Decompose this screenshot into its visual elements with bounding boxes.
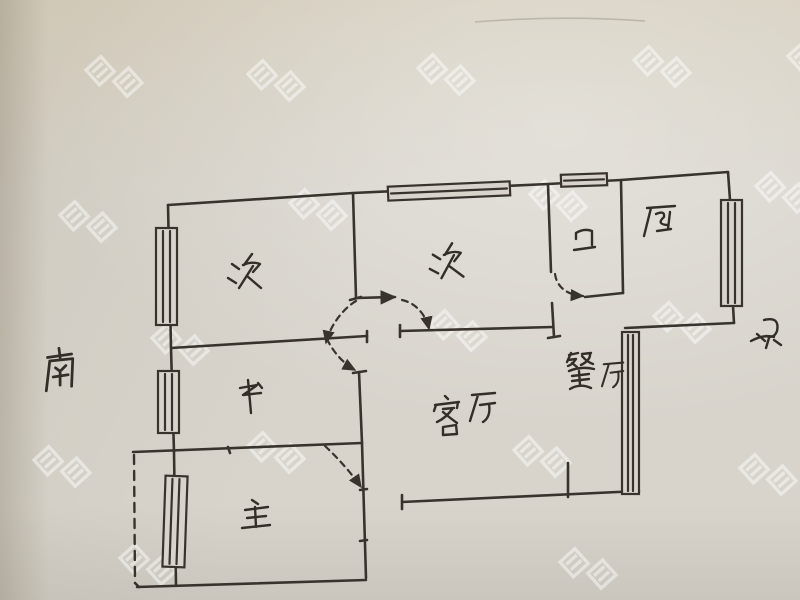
window-study <box>158 371 179 433</box>
window-kitchen <box>721 200 742 306</box>
label-glyph-bathroom <box>574 230 595 250</box>
label-glyph-living-room <box>434 393 495 435</box>
label-glyph-master-bedroom <box>242 500 270 528</box>
compass-south-glyph <box>46 348 72 391</box>
floor-plan-photo: 次 次 卫 厨 书 客厅 餐厅 主 南 北 房星 <box>0 0 800 600</box>
window-dining <box>622 332 639 494</box>
door-arcs <box>325 274 583 487</box>
floor-plan-drawing <box>0 0 800 600</box>
window-bathroom <box>561 173 607 187</box>
window-master-bedroom <box>162 476 187 568</box>
label-glyph-dining-room <box>567 353 623 389</box>
paper-crease <box>475 18 645 22</box>
compass-north-glyph <box>751 319 781 348</box>
watermark-grid <box>34 34 800 597</box>
window-left-bedroom <box>156 228 177 325</box>
label-glyph-study <box>240 380 262 413</box>
window-middle-bedroom <box>388 181 510 200</box>
label-glyph-secondary-bedroom-left <box>228 254 261 288</box>
label-glyph-secondary-bedroom-middle <box>428 243 463 279</box>
windows <box>156 173 742 567</box>
label-glyph-kitchen <box>644 206 675 236</box>
